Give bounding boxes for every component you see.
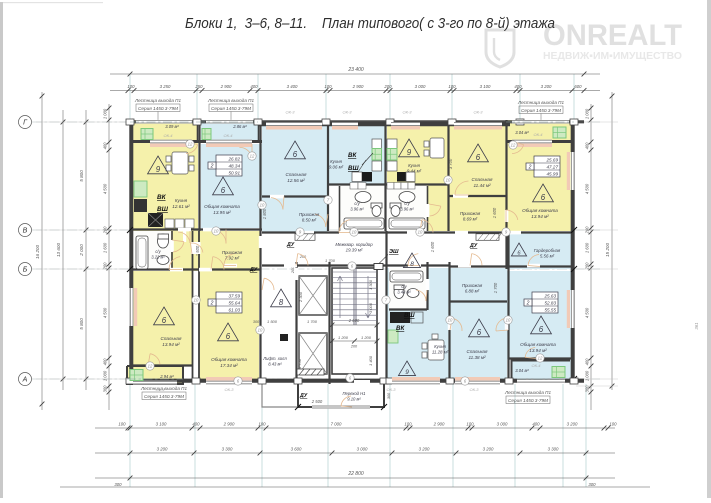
svg-text:3 200: 3 200 xyxy=(567,422,578,427)
svg-text:26.82: 26.82 xyxy=(228,157,241,162)
svg-text:ЭШ: ЭШ xyxy=(389,249,399,255)
svg-text:1 600: 1 600 xyxy=(430,241,435,252)
svg-text:ОК-3: ОК-3 xyxy=(224,387,234,392)
svg-text:400: 400 xyxy=(103,142,108,150)
svg-text:ВШ: ВШ xyxy=(157,206,169,213)
svg-text:1 700: 1 700 xyxy=(325,258,336,263)
svg-text:13.94 м²: 13.94 м² xyxy=(531,214,549,219)
svg-text:2: 2 xyxy=(210,301,214,307)
svg-text:Общая комната: Общая комната xyxy=(520,342,556,347)
svg-text:400: 400 xyxy=(585,142,590,150)
svg-text:Серия 1450.3-79М: Серия 1450.3-79М xyxy=(144,394,185,399)
svg-text:ДУ: ДУ xyxy=(249,267,258,273)
svg-text:ОК-4: ОК-4 xyxy=(531,363,541,368)
svg-text:9: 9 xyxy=(405,369,409,376)
svg-text:15 200: 15 200 xyxy=(605,243,610,257)
svg-text:13.94 м²: 13.94 м² xyxy=(529,348,547,353)
svg-text:300: 300 xyxy=(253,320,260,324)
svg-text:3 200: 3 200 xyxy=(483,447,494,452)
svg-text:300: 300 xyxy=(114,482,122,487)
svg-text:400: 400 xyxy=(532,422,540,427)
svg-text:Переход Н1: Переход Н1 xyxy=(342,391,365,396)
svg-text:Лифт. холл: Лифт. холл xyxy=(262,356,287,361)
svg-text:300: 300 xyxy=(588,482,596,487)
svg-text:3.09 м²: 3.09 м² xyxy=(165,124,179,129)
svg-text:47.27: 47.27 xyxy=(547,165,559,170)
svg-text:9.10 м²: 9.10 м² xyxy=(347,396,361,401)
svg-text:2 900: 2 900 xyxy=(433,422,445,427)
svg-text:3 000: 3 000 xyxy=(497,422,508,427)
svg-text:10: 10 xyxy=(194,298,199,303)
svg-text:3 400: 3 400 xyxy=(287,84,298,89)
svg-text:3 100: 3 100 xyxy=(156,422,167,427)
svg-text:3 200: 3 200 xyxy=(541,84,552,89)
svg-text:ОК-3: ОК-3 xyxy=(386,387,396,392)
svg-text:400: 400 xyxy=(192,422,200,427)
svg-text:400: 400 xyxy=(103,358,108,366)
svg-text:Б: Б xyxy=(23,267,28,274)
svg-text:10: 10 xyxy=(260,203,265,208)
svg-text:12: 12 xyxy=(148,364,153,369)
svg-text:100: 100 xyxy=(118,422,126,427)
svg-text:6: 6 xyxy=(476,153,481,162)
svg-text:1 600: 1 600 xyxy=(103,242,108,253)
svg-text:10: 10 xyxy=(352,230,357,235)
svg-text:Межквар. коридор: Межквар. коридор xyxy=(335,242,373,247)
svg-text:4 500: 4 500 xyxy=(585,307,590,318)
svg-text:2 500: 2 500 xyxy=(311,399,323,404)
svg-text:6: 6 xyxy=(541,193,546,202)
svg-text:52.83: 52.83 xyxy=(545,301,557,306)
svg-text:1 000: 1 000 xyxy=(585,108,590,119)
svg-text:8: 8 xyxy=(410,261,414,268)
svg-text:Прихожая: Прихожая xyxy=(460,211,481,216)
svg-text:3 600: 3 600 xyxy=(291,447,302,452)
svg-text:3.22 м²: 3.22 м² xyxy=(151,254,165,259)
svg-text:ВШ: ВШ xyxy=(404,312,415,319)
svg-text:с/у: с/у xyxy=(404,201,410,206)
svg-text:1 300: 1 300 xyxy=(368,279,373,290)
svg-text:13.94 м²: 13.94 м² xyxy=(162,342,180,347)
svg-text:2 000: 2 000 xyxy=(79,244,84,257)
svg-text:10: 10 xyxy=(418,230,423,235)
svg-text:25.69: 25.69 xyxy=(546,158,559,163)
svg-text:200: 200 xyxy=(383,84,392,89)
svg-text:2 300: 2 300 xyxy=(298,291,303,303)
svg-text:ДУ: ДУ xyxy=(469,243,478,249)
svg-text:ДУ: ДУ xyxy=(299,393,308,399)
svg-text:9: 9 xyxy=(156,165,161,174)
svg-text:1 600: 1 600 xyxy=(492,207,497,218)
svg-text:ОК-3: ОК-3 xyxy=(285,110,295,115)
svg-text:2.94 м²: 2.94 м² xyxy=(159,374,174,379)
svg-text:1 600: 1 600 xyxy=(585,242,590,253)
svg-text:12: 12 xyxy=(188,142,193,147)
svg-text:3 200: 3 200 xyxy=(419,447,430,452)
svg-text:9.06 м²: 9.06 м² xyxy=(329,165,344,170)
svg-text:2.86 м²: 2.86 м² xyxy=(232,124,247,129)
svg-text:4 500: 4 500 xyxy=(585,183,590,194)
svg-text:12: 12 xyxy=(250,154,255,159)
svg-text:12: 12 xyxy=(511,143,516,148)
svg-text:8.50 м²: 8.50 м² xyxy=(302,218,317,223)
svg-text:Лестница выхода П1: Лестница выхода П1 xyxy=(504,390,551,395)
svg-text:11.44 м²: 11.44 м² xyxy=(473,183,491,188)
svg-text:Гардеробная: Гардеробная xyxy=(534,248,561,253)
svg-text:12.56 м²: 12.56 м² xyxy=(287,178,305,183)
svg-text:25.63: 25.63 xyxy=(544,294,557,299)
svg-text:Прихожая: Прихожая xyxy=(462,283,483,288)
svg-text:ОК-3: ОК-3 xyxy=(469,387,479,392)
svg-text:3 000: 3 000 xyxy=(368,302,373,313)
svg-text:2: 2 xyxy=(528,165,532,171)
svg-text:6: 6 xyxy=(293,150,298,159)
svg-text:ВШ: ВШ xyxy=(348,165,359,172)
svg-text:100: 100 xyxy=(448,84,456,89)
svg-text:12.61 м²: 12.61 м² xyxy=(172,204,190,209)
svg-text:Кухня: Кухня xyxy=(175,198,188,203)
svg-text:Блоки 1, 3–6, 8–11. План т: Блоки 1, 3–6, 8–11. План типового( с 3-г… xyxy=(185,15,555,32)
svg-text:Спальная: Спальная xyxy=(161,336,182,341)
svg-text:ОК-4: ОК-4 xyxy=(155,387,165,392)
svg-text:55.64: 55.64 xyxy=(229,301,241,306)
svg-text:5 800: 5 800 xyxy=(79,170,84,182)
svg-text:Лестница выхода П1: Лестница выхода П1 xyxy=(134,98,181,103)
svg-text:3.96 м²: 3.96 м² xyxy=(350,206,364,211)
svg-text:361: 361 xyxy=(694,322,699,330)
svg-text:37.59: 37.59 xyxy=(229,294,241,299)
svg-text:600: 600 xyxy=(574,84,582,89)
svg-text:400: 400 xyxy=(585,358,590,366)
svg-text:ДУ: ДУ xyxy=(286,242,295,248)
svg-text:11.38 м²: 11.38 м² xyxy=(468,355,486,360)
svg-text:Спальная: Спальная xyxy=(472,177,493,182)
svg-text:7 000: 7 000 xyxy=(331,422,342,427)
svg-text:1 400: 1 400 xyxy=(368,355,373,366)
svg-text:10: 10 xyxy=(446,178,451,183)
svg-text:9.44 м²: 9.44 м² xyxy=(407,169,422,174)
svg-text:19.39 м²: 19.39 м² xyxy=(346,248,363,253)
svg-text:8.43 м²: 8.43 м² xyxy=(268,361,282,366)
svg-text:23 400: 23 400 xyxy=(347,67,364,73)
svg-text:48.34: 48.34 xyxy=(229,164,241,169)
svg-text:17.34 м²: 17.34 м² xyxy=(220,363,238,368)
svg-text:Лестница выхода П1: Лестница выхода П1 xyxy=(517,100,564,105)
svg-text:1 000: 1 000 xyxy=(103,108,108,119)
svg-text:100: 100 xyxy=(404,422,412,427)
svg-text:1 800: 1 800 xyxy=(262,208,267,219)
svg-text:3 000: 3 000 xyxy=(357,447,368,452)
svg-text:12: 12 xyxy=(538,356,543,361)
svg-text:3 700: 3 700 xyxy=(448,158,453,169)
svg-text:Прихожая: Прихожая xyxy=(299,212,320,217)
svg-text:1 750: 1 750 xyxy=(297,358,302,369)
svg-text:10: 10 xyxy=(448,318,453,323)
svg-text:6: 6 xyxy=(539,325,544,334)
svg-text:1 000: 1 000 xyxy=(585,370,590,381)
svg-text:100: 100 xyxy=(258,422,266,427)
svg-text:НЕДВИЖ▪ИМ▪ИМУЩЕСТВО: НЕДВИЖ▪ИМ▪ИМУЩЕСТВО xyxy=(543,50,682,62)
svg-text:100: 100 xyxy=(324,84,332,89)
svg-text:3 250: 3 250 xyxy=(160,84,171,89)
svg-text:2: 2 xyxy=(526,301,530,307)
svg-text:5.56 м²: 5.56 м² xyxy=(540,254,555,259)
svg-text:13 600: 13 600 xyxy=(56,243,61,257)
svg-text:300: 300 xyxy=(103,385,108,393)
svg-text:8: 8 xyxy=(279,298,284,307)
svg-text:6: 6 xyxy=(226,332,231,341)
svg-text:10: 10 xyxy=(258,328,263,333)
svg-text:Кухня: Кухня xyxy=(330,159,342,164)
svg-text:Спальная: Спальная xyxy=(467,349,488,354)
svg-text:с/у: с/у xyxy=(401,284,407,289)
svg-text:3 300: 3 300 xyxy=(548,447,559,452)
svg-text:8.69 м²: 8.69 м² xyxy=(463,217,478,222)
svg-text:2 900: 2 900 xyxy=(352,84,364,89)
svg-text:Общая комната: Общая комната xyxy=(211,357,247,362)
svg-text:Кухня: Кухня xyxy=(408,163,420,168)
svg-text:ОК-4: ОК-4 xyxy=(533,132,543,137)
svg-text:3.96 м²: 3.96 м² xyxy=(400,206,414,211)
svg-text:5 800: 5 800 xyxy=(79,318,84,330)
svg-text:45.99: 45.99 xyxy=(547,172,559,177)
svg-text:ВК: ВК xyxy=(348,152,357,159)
svg-text:4 500: 4 500 xyxy=(103,183,108,194)
svg-text:7.92 м²: 7.92 м² xyxy=(225,256,240,261)
svg-text:3 300: 3 300 xyxy=(222,447,233,452)
svg-text:Общая комната: Общая комната xyxy=(522,208,558,213)
svg-text:55.55: 55.55 xyxy=(545,308,557,313)
svg-text:6: 6 xyxy=(477,328,482,337)
svg-text:ОК-4: ОК-4 xyxy=(223,133,233,138)
svg-text:В: В xyxy=(23,228,28,235)
svg-text:Спальная: Спальная xyxy=(286,172,307,177)
svg-text:1 200: 1 200 xyxy=(361,335,372,340)
svg-text:11.28 м²: 11.28 м² xyxy=(432,350,449,355)
svg-text:1 500: 1 500 xyxy=(267,319,278,324)
svg-text:200: 200 xyxy=(350,345,358,349)
svg-text:400: 400 xyxy=(514,84,522,89)
svg-text:ОК-3: ОК-3 xyxy=(402,110,412,115)
svg-text:3.48 м²: 3.48 м² xyxy=(397,289,411,294)
svg-text:13.95 м²: 13.95 м² xyxy=(213,210,231,215)
svg-text:4 500: 4 500 xyxy=(103,307,108,318)
svg-text:А: А xyxy=(22,377,28,384)
svg-text:ВК: ВК xyxy=(157,194,167,201)
svg-text:Кухня: Кухня xyxy=(434,344,446,349)
svg-text:6.88 м²: 6.88 м² xyxy=(465,289,480,294)
svg-text:61.03: 61.03 xyxy=(229,308,241,313)
svg-text:3 100: 3 100 xyxy=(480,84,491,89)
svg-text:2 600: 2 600 xyxy=(348,318,360,323)
svg-text:1 500: 1 500 xyxy=(195,245,200,256)
svg-text:Серия 1450.3-79М: Серия 1450.3-79М xyxy=(508,398,549,403)
svg-text:1 000: 1 000 xyxy=(103,370,108,381)
svg-text:300: 300 xyxy=(387,392,391,399)
svg-text:Серия 1450.3-79М: Серия 1450.3-79М xyxy=(521,108,562,113)
svg-text:3 000: 3 000 xyxy=(415,84,426,89)
svg-text:10: 10 xyxy=(506,318,511,323)
svg-text:3.04 м²: 3.04 м² xyxy=(515,130,529,135)
svg-text:6: 6 xyxy=(162,316,167,325)
svg-text:3.04 м²: 3.04 м² xyxy=(515,368,529,373)
svg-text:2 900: 2 900 xyxy=(223,422,235,427)
svg-text:1 200: 1 200 xyxy=(338,335,349,340)
svg-text:6: 6 xyxy=(221,186,226,195)
svg-text:250: 250 xyxy=(194,84,203,89)
svg-text:ONREALT: ONREALT xyxy=(543,19,682,52)
svg-text:100: 100 xyxy=(466,422,474,427)
svg-text:с/у: с/у xyxy=(354,201,360,206)
svg-text:3 200: 3 200 xyxy=(157,447,168,452)
svg-text:Прихожая: Прихожая xyxy=(222,250,243,255)
svg-text:ОК-4: ОК-4 xyxy=(163,133,173,138)
svg-text:22 800: 22 800 xyxy=(347,471,364,477)
svg-text:ВК: ВК xyxy=(396,325,405,332)
svg-text:с/у: с/у xyxy=(155,249,161,254)
svg-text:Общая комната: Общая комната xyxy=(204,204,240,209)
svg-text:16 200: 16 200 xyxy=(35,245,40,259)
svg-text:ОК-3: ОК-3 xyxy=(473,110,483,115)
svg-text:2: 2 xyxy=(210,164,214,170)
svg-text:100: 100 xyxy=(127,84,135,89)
svg-text:ОК-3: ОК-3 xyxy=(342,110,352,115)
svg-text:100: 100 xyxy=(609,422,617,427)
svg-text:400: 400 xyxy=(250,84,258,89)
svg-text:Серия 1450.3-79М: Серия 1450.3-79М xyxy=(211,106,252,111)
svg-text:1 700: 1 700 xyxy=(493,282,498,293)
svg-text:50.91: 50.91 xyxy=(229,171,241,176)
svg-text:Лестница выхода П1: Лестница выхода П1 xyxy=(207,98,254,103)
svg-text:2 900: 2 900 xyxy=(220,84,232,89)
svg-text:10: 10 xyxy=(214,229,219,234)
svg-text:9: 9 xyxy=(407,148,412,157)
svg-text:1 700: 1 700 xyxy=(307,319,318,324)
svg-text:Серия 1450.3-79М: Серия 1450.3-79М xyxy=(138,106,179,111)
